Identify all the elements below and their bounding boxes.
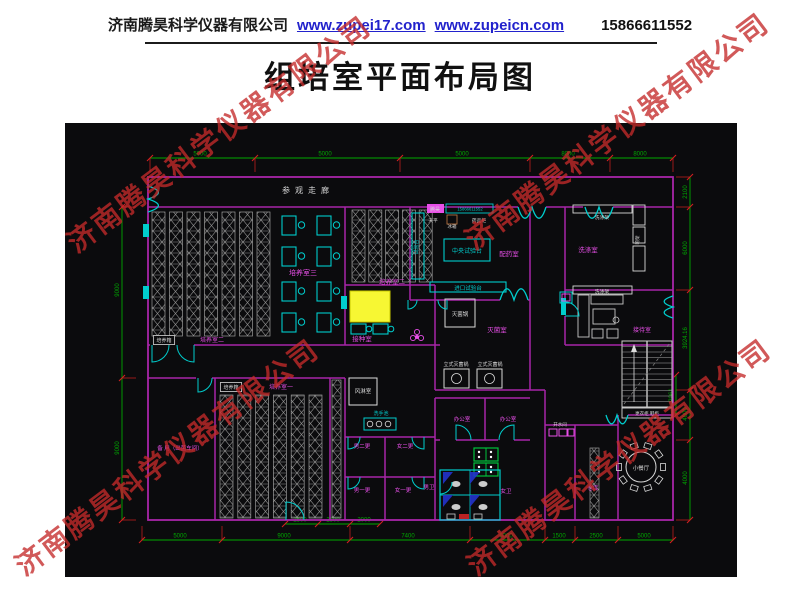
culture-rack	[152, 212, 165, 336]
room-label: 冰箱	[448, 223, 457, 230]
room-label: 办公室	[454, 415, 471, 423]
room-label: 更衣柜 鞋柜	[635, 410, 659, 417]
room-label: 小餐厅	[633, 464, 650, 472]
highlight-box	[350, 291, 390, 322]
room-label: 天平	[428, 218, 438, 224]
room-label: 培养箱	[156, 337, 171, 344]
dim-label: 4000	[683, 407, 689, 421]
room-label: 开水间	[553, 421, 567, 428]
culture-rack	[369, 210, 382, 282]
dim-label: 9000	[115, 441, 121, 455]
culture-rack	[309, 395, 322, 518]
culture-rack	[352, 210, 365, 282]
room-label: 药品柜	[472, 217, 487, 224]
culture-rack	[332, 380, 341, 518]
room-label: 灭菌锅	[452, 310, 469, 318]
room-label: 15866611552	[457, 207, 483, 212]
dim-label: 6000	[683, 241, 689, 255]
dim-label: 1500	[552, 534, 566, 540]
culture-rack	[256, 395, 269, 518]
dim-label: 7400	[401, 534, 415, 540]
culture-rack	[590, 448, 599, 518]
room-label: 女一更	[395, 486, 412, 494]
room-label: 培养箱	[223, 384, 238, 391]
room-label: 洗涤架	[595, 288, 610, 295]
room-label: 培养室二	[200, 336, 224, 344]
culture-rack	[386, 210, 399, 282]
dim-label: 8000	[633, 152, 647, 158]
room-label: 男卫	[423, 484, 435, 491]
dim-label: 2100	[683, 185, 689, 199]
dim-label: 6000	[499, 534, 513, 540]
culture-rack	[257, 212, 270, 336]
room-label: 办公室	[500, 415, 517, 423]
floorplan-drawing: 5000500050008000800050009000740060001500…	[0, 0, 800, 600]
room-label: 配药室	[499, 249, 519, 258]
culture-rack	[273, 395, 286, 518]
culture-rack	[220, 395, 233, 518]
dim-label: 2500	[589, 534, 603, 540]
room-label: 男二更	[354, 443, 371, 450]
dim-label: 3924.16	[683, 327, 689, 349]
culture-rack	[170, 212, 183, 336]
culture-rack	[222, 212, 235, 336]
dim-label: 5000	[637, 534, 651, 540]
room-label: 洗涤室	[578, 245, 598, 254]
room-label: 进口试验台	[454, 284, 482, 292]
culture-rack	[240, 212, 253, 336]
room-label: 洗手池	[373, 410, 388, 417]
dim-label: 9000	[115, 283, 121, 297]
dim-label: 9000	[277, 534, 291, 540]
room-label: 立式灭菌锅	[477, 361, 502, 368]
room-label: 培养室一	[269, 383, 293, 391]
room-label: 接待室	[633, 326, 651, 334]
room-label: 立式灭菌锅	[443, 361, 468, 368]
room-label: 中央试验台	[452, 247, 482, 255]
culture-rack	[238, 395, 251, 518]
page: 济南腾昊科学仪器有限公司 www.zupei17.com www.zupeicn…	[0, 0, 800, 600]
room-label: 晾架	[634, 235, 641, 244]
room-label: 试验台	[413, 239, 420, 254]
dim-label: 5000	[455, 152, 469, 158]
dim-label: 4000	[683, 471, 689, 485]
room-label: 女二更	[397, 442, 414, 450]
room-label: 接种室	[352, 334, 372, 343]
dim-label: 8000	[561, 152, 575, 158]
room-label: 洗涤架	[595, 214, 610, 221]
room-label: 男一更	[354, 487, 371, 494]
dim-label: 5000	[193, 152, 207, 158]
room-label: 备 用（出菌车间）	[157, 444, 203, 452]
culture-rack	[187, 212, 200, 336]
culture-rack	[205, 212, 218, 336]
culture-rack	[291, 395, 304, 518]
room-label: 女卫	[500, 487, 512, 495]
room-label: 风淋室	[355, 387, 372, 395]
room-label: 灭菌室	[487, 325, 507, 334]
room-label: 培养室二	[379, 277, 406, 286]
room-label: 培养室三	[289, 268, 317, 277]
dim-label: 5000	[173, 534, 187, 540]
room-label: 参观走廊	[282, 185, 334, 195]
room-label: 腾昊	[430, 206, 440, 213]
room-label: 仓库	[587, 484, 599, 492]
dim-label: 5000	[318, 152, 332, 158]
